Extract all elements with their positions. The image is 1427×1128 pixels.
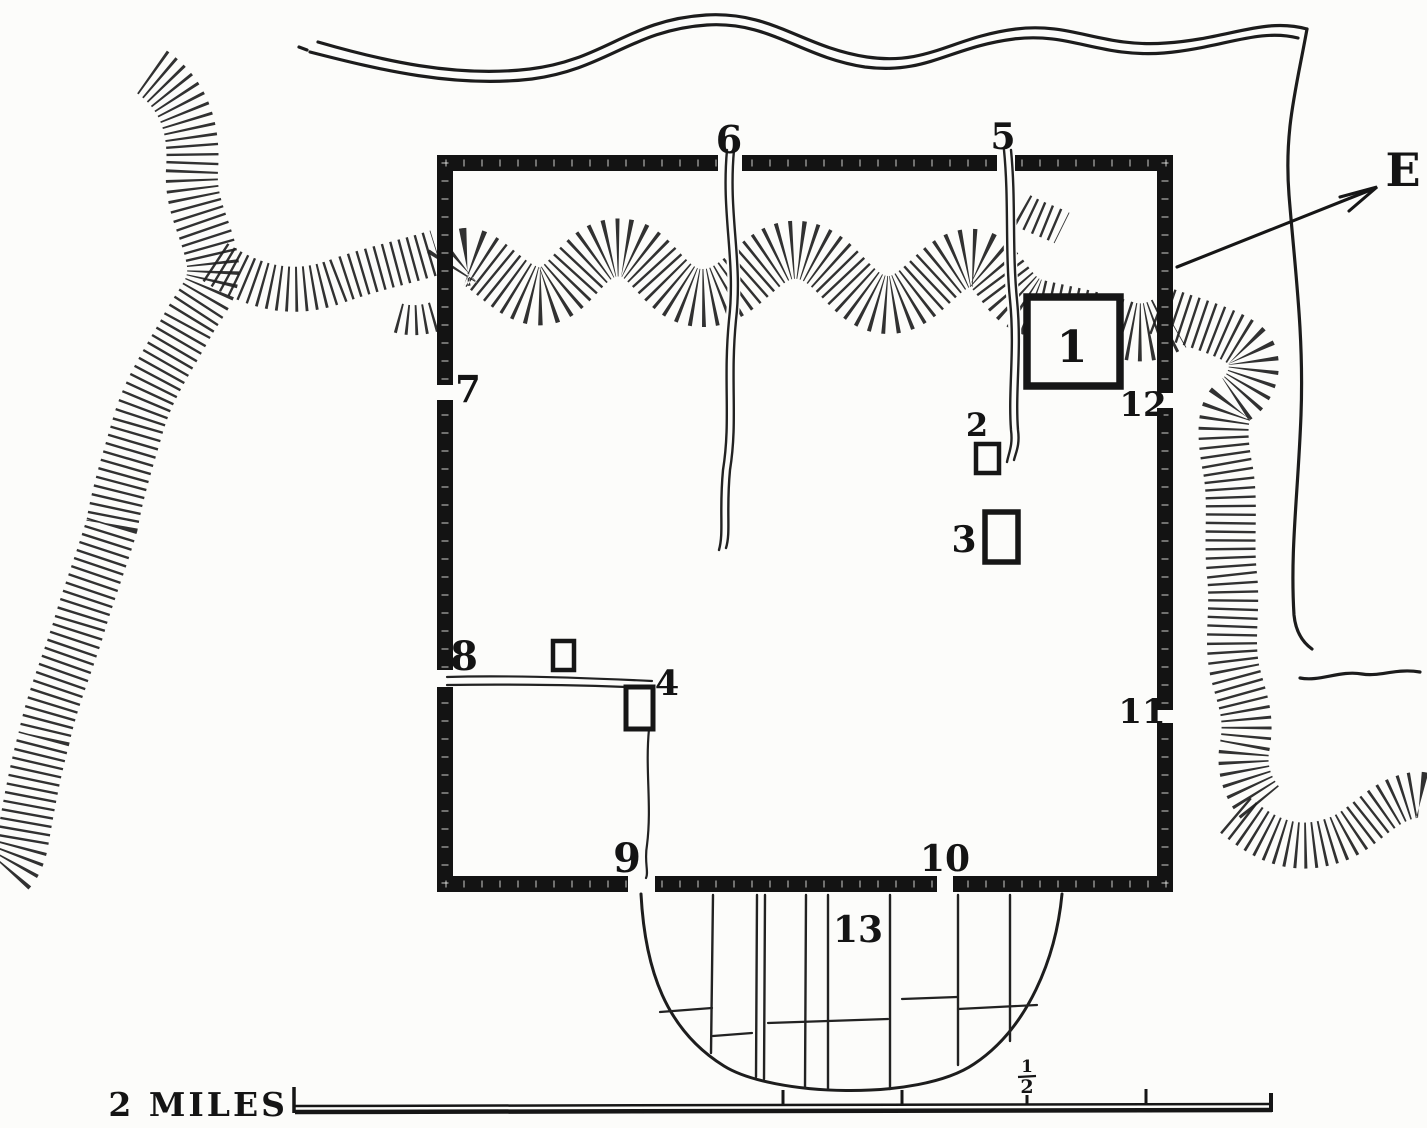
site-3-square <box>985 512 1018 562</box>
label-gate-12: 12 <box>1119 385 1166 425</box>
site-labels: 1 2 3 4 5 6 7 8 9 10 11 12 13 <box>450 116 1167 951</box>
site-2-square <box>976 444 999 473</box>
east-river-bend <box>1300 671 1420 679</box>
scale-bar: 2 MILES 1 2 <box>108 1057 1272 1124</box>
scale-half-numerator: 1 <box>1021 1057 1033 1077</box>
annexe-plot-line <box>756 895 757 1077</box>
inner-wall-small-square <box>553 641 574 670</box>
streams <box>719 150 1019 550</box>
east-river <box>1288 29 1312 649</box>
north-river-bank-2 <box>310 25 1298 82</box>
label-site-4: 4 <box>655 663 679 704</box>
label-site-2: 2 <box>966 406 988 444</box>
inner-wall-vertical-line <box>646 729 649 878</box>
annexe-cross-line <box>713 1033 752 1036</box>
label-site-3: 3 <box>951 519 976 561</box>
north-river-start-dash <box>299 47 307 50</box>
terrain-hachures <box>6 72 1427 875</box>
engraved-map-plan: E 2 MILES 1 2 1 2 3 4 5 6 7 8 9 10 11 12… <box>0 0 1427 1128</box>
compass-east-label: E <box>1385 143 1420 197</box>
label-gate-8: 8 <box>450 633 478 680</box>
label-gate-5: 5 <box>990 116 1015 158</box>
south-wall-west-segment <box>437 876 628 892</box>
west-branch-hachures <box>215 252 437 289</box>
label-gate-11: 11 <box>1118 692 1165 732</box>
north-wall-west-segment <box>437 155 718 171</box>
annexe-plot-line <box>805 895 806 1088</box>
label-gate-7: 7 <box>455 367 481 411</box>
map-canvas: E 2 MILES 1 2 1 2 3 4 5 6 7 8 9 10 11 12… <box>0 0 1427 1128</box>
compass-arrow: E <box>1177 143 1421 267</box>
scale-bar-label: 2 MILES <box>108 1085 288 1124</box>
gate5-tuft-hachures <box>1022 210 1062 228</box>
rivers <box>299 15 1420 679</box>
label-site-13: 13 <box>833 909 883 951</box>
scale-half-denominator: 2 <box>1020 1076 1033 1098</box>
north-river-bank-1 <box>318 15 1307 72</box>
west-wall-lower-segment <box>437 687 453 892</box>
inner-wall-lower-line <box>447 685 650 688</box>
site-4-square <box>626 687 653 729</box>
annexe-plot-line <box>711 895 713 1053</box>
annexe-cross-line <box>902 997 957 999</box>
compass-arrow-shaft <box>1177 189 1373 267</box>
east-wall-upper-segment <box>1157 155 1173 393</box>
east-wall-lower-segment <box>1157 723 1173 892</box>
label-gate-6: 6 <box>716 117 742 162</box>
annexe-plot-line <box>764 895 765 1079</box>
southeast-mound-hachures <box>1235 795 1427 846</box>
north-wall-middle-segment <box>742 155 997 171</box>
west-ridge-hachures <box>6 72 213 875</box>
label-gate-9: 9 <box>613 835 641 882</box>
scale-bar-bottom-line <box>295 1110 1272 1112</box>
label-site-1: 1 <box>1057 322 1088 373</box>
west-wall-middle-segment <box>437 400 453 670</box>
label-gate-10: 10 <box>920 838 970 880</box>
east-ridge-hachures <box>1158 310 1262 805</box>
west-wall-tuft-hachures <box>398 316 437 320</box>
